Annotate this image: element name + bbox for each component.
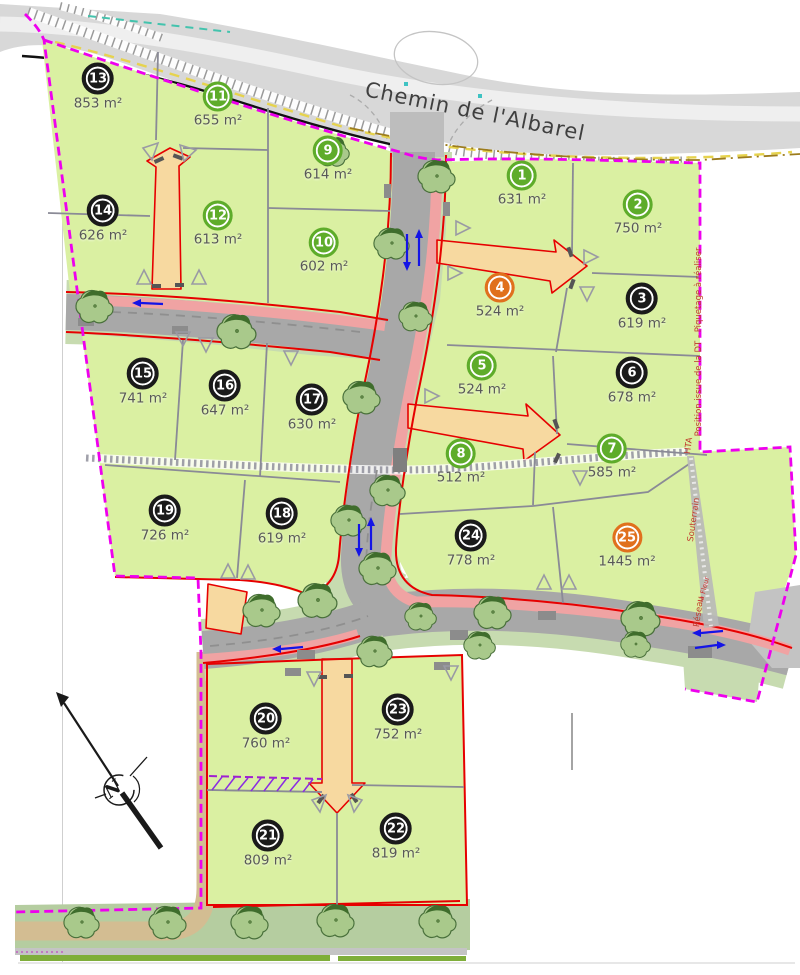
lot-area-label: 524 m² (476, 304, 525, 320)
lot-marker: 9 614 m² (304, 136, 353, 183)
lot-area-label: 602 m² (300, 259, 349, 275)
lot-marker: 24 778 m² (447, 520, 496, 569)
lot-number-badge: 18 (266, 498, 298, 530)
lot-marker: 10 602 m² (300, 228, 349, 275)
lot-marker: 2 750 m² (614, 190, 663, 237)
lot-area-label: 726 m² (141, 528, 190, 544)
lot-marker: 7 585 m² (588, 434, 637, 481)
subdivision-plan: Chemin de l'Albarel Position issue de la… (0, 0, 800, 975)
lot-marker: 25 1445 m² (598, 523, 655, 570)
lot-number-badge: 11 (203, 82, 233, 112)
lot-marker: 8 512 m² (437, 439, 486, 486)
lot-area-label: 741 m² (119, 391, 168, 407)
lot-area-label: 853 m² (74, 96, 123, 112)
lot-area-label: 1445 m² (598, 554, 655, 570)
lot-number-badge: 6 (616, 357, 648, 389)
lot-area-label: 750 m² (614, 221, 663, 237)
lot-marker: 11 655 m² (194, 82, 243, 129)
lot-number-badge: 20 (250, 703, 282, 735)
lot-marker: 12 613 m² (194, 201, 243, 248)
lot-number-badge: 10 (309, 228, 339, 258)
lot-marker: 19 726 m² (141, 495, 190, 544)
lot-marker: 3 619 m² (618, 283, 667, 332)
lot-number-badge: 19 (149, 495, 181, 527)
lot-number-badge: 2 (623, 190, 653, 220)
lot-number-badge: 8 (446, 439, 476, 469)
lot-area-label: 631 m² (498, 192, 547, 208)
lot-number-badge: 24 (455, 520, 487, 552)
lot-number-badge: 5 (467, 351, 497, 381)
lot-area-label: 647 m² (201, 403, 250, 419)
lot-marker: 20 760 m² (242, 703, 291, 752)
lot-marker: 22 819 m² (372, 813, 421, 862)
lot-area-label: 778 m² (447, 553, 496, 569)
lot-area-label: 655 m² (194, 113, 243, 129)
lot-number-badge: 23 (382, 694, 414, 726)
lot-markers-layer: 1 631 m² 2 750 m² 3 619 m² 4 524 m² 5 52… (0, 0, 800, 975)
lot-marker: 21 809 m² (244, 820, 293, 869)
lot-number-badge: 25 (612, 523, 642, 553)
lot-number-badge: 9 (313, 136, 343, 166)
lot-marker: 13 853 m² (74, 63, 123, 112)
lot-marker: 17 630 m² (288, 384, 337, 433)
lot-area-label: 585 m² (588, 465, 637, 481)
lot-area-label: 613 m² (194, 232, 243, 248)
lot-number-badge: 22 (380, 813, 412, 845)
lot-area-label: 678 m² (608, 390, 657, 406)
lot-area-label: 760 m² (242, 736, 291, 752)
lot-marker: 4 524 m² (476, 273, 525, 320)
lot-area-label: 524 m² (458, 382, 507, 398)
lot-number-badge: 17 (296, 384, 328, 416)
lot-number-badge: 15 (127, 358, 159, 390)
lot-marker: 14 626 m² (79, 195, 128, 244)
lot-area-label: 819 m² (372, 846, 421, 862)
lot-number-badge: 12 (203, 201, 233, 231)
lot-marker: 5 524 m² (458, 351, 507, 398)
lot-number-badge: 3 (626, 283, 658, 315)
lot-area-label: 619 m² (258, 531, 307, 547)
lot-number-badge: 14 (87, 195, 119, 227)
lot-marker: 6 678 m² (608, 357, 657, 406)
lot-marker: 16 647 m² (201, 370, 250, 419)
lot-marker: 15 741 m² (119, 358, 168, 407)
lot-number-badge: 7 (597, 434, 627, 464)
lot-area-label: 752 m² (374, 727, 423, 743)
lot-area-label: 809 m² (244, 853, 293, 869)
lot-marker: 1 631 m² (498, 161, 547, 208)
lot-area-label: 630 m² (288, 417, 337, 433)
lot-marker: 23 752 m² (374, 694, 423, 743)
lot-number-badge: 4 (485, 273, 515, 303)
lot-number-badge: 21 (252, 820, 284, 852)
lot-number-badge: 1 (507, 161, 537, 191)
lot-area-label: 619 m² (618, 316, 667, 332)
lot-area-label: 626 m² (79, 228, 128, 244)
lot-marker: 18 619 m² (258, 498, 307, 547)
lot-area-label: 512 m² (437, 470, 486, 486)
lot-number-badge: 13 (82, 63, 114, 95)
lot-number-badge: 16 (209, 370, 241, 402)
lot-area-label: 614 m² (304, 167, 353, 183)
